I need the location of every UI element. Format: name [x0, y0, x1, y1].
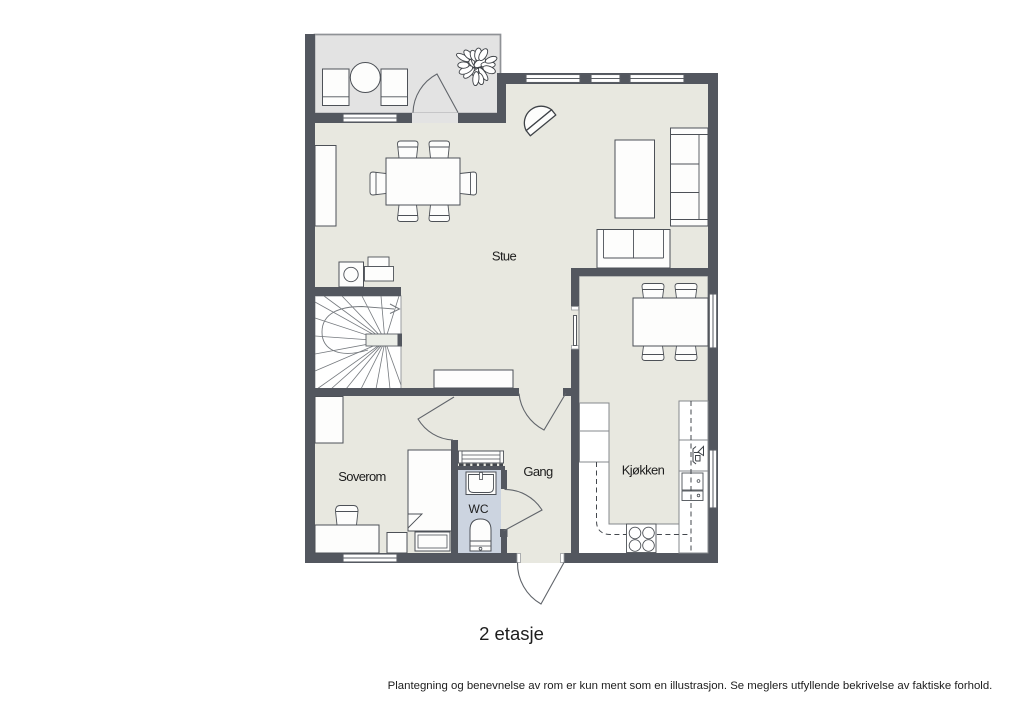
svg-text:Soverom: Soverom: [338, 469, 385, 484]
svg-text:Plantegning og benevnelse av r: Plantegning og benevnelse av rom er kun …: [388, 680, 993, 692]
svg-text:Kjøkken: Kjøkken: [622, 463, 665, 478]
svg-text:Gang: Gang: [523, 464, 553, 479]
svg-text:Stue: Stue: [492, 249, 517, 264]
svg-text:2 etasje: 2 etasje: [479, 623, 544, 644]
svg-text:WC: WC: [469, 502, 489, 516]
